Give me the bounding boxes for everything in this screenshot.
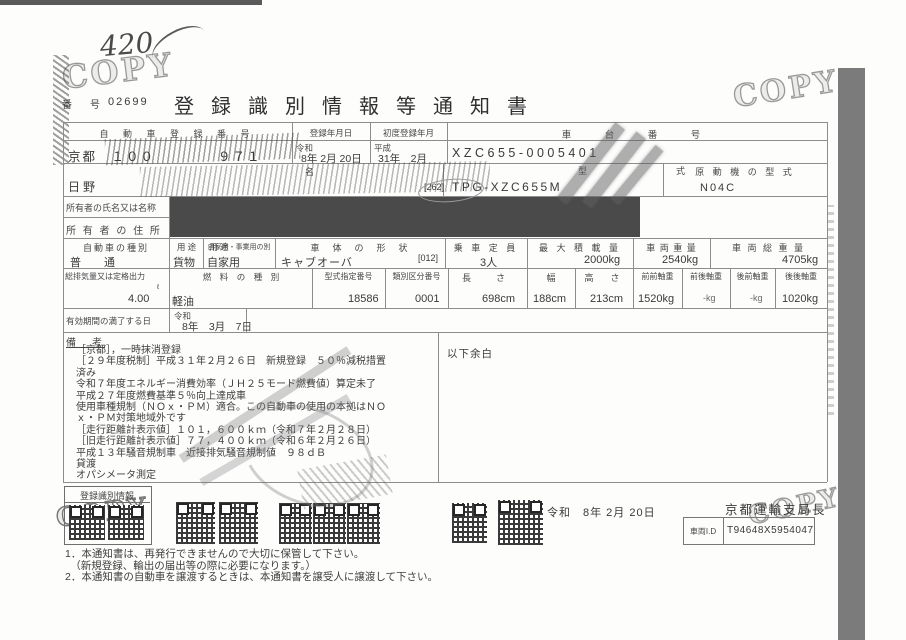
- doc-number-label: 番 号: [62, 96, 104, 111]
- axle-rr-label: 後後軸重: [775, 271, 827, 282]
- qr-code: [176, 502, 215, 544]
- capacity-value: 3人: [480, 254, 497, 270]
- vehicle-id-label: 車両I.D: [683, 526, 723, 537]
- scan-side-bar: [838, 68, 865, 640]
- qr-code: [347, 503, 380, 544]
- width-label: 幅: [527, 271, 575, 284]
- registration-notice-document: 420 COPY COPY COPY COPY 番 号 02699 登録識別情報…: [0, 0, 906, 640]
- qr-code: [108, 505, 144, 540]
- length-value: 698cm: [482, 293, 515, 305]
- height-label: 高 さ: [575, 271, 633, 284]
- engine-model-value: N04C: [700, 182, 736, 194]
- reg-date-label: 登録年月日: [292, 127, 370, 139]
- weight-label: 車 両 重 量: [633, 241, 710, 254]
- length-label: 長 さ: [448, 271, 527, 284]
- reg-id-box-label: 登録識別情報: [64, 489, 150, 502]
- axle-ff-value: 1520kg: [638, 293, 674, 305]
- width-value: 188cm: [533, 293, 566, 305]
- gross-weight-value: 4705kg: [782, 254, 818, 266]
- vehicle-id-value: T94648X5954047: [727, 525, 814, 536]
- axle-rf-value: -kg: [750, 293, 763, 303]
- doc-number: 02699: [108, 96, 149, 108]
- body-shape-value: キャブオーバ: [281, 254, 353, 270]
- category-value: 普 通: [70, 254, 121, 270]
- type-no-value: 18586: [348, 293, 379, 305]
- chassis-value: XZC655-0005401: [452, 146, 600, 160]
- max-load-label: 最 大 積 載 量: [527, 241, 633, 254]
- axle-rr-value: 1020kg: [782, 293, 818, 305]
- scan-bleed-marks: [828, 205, 834, 415]
- height-value: 213cm: [590, 293, 623, 305]
- footnote-line: 1．本通知書は、再発行できませんので大切に保管して下さい。: [65, 549, 525, 561]
- type-no-label: 型式指定番号: [312, 271, 385, 282]
- gross-weight-label: 車 両 総 重 量: [710, 241, 827, 254]
- blank-note: 以下余白: [447, 346, 493, 361]
- footnote-line: 2．本通知書の自動車を譲渡するときは、本通知書を譲受人に譲渡して下さい。: [65, 572, 525, 584]
- qr-code: [219, 502, 258, 544]
- scan-edge-top: [0, 0, 262, 5]
- expiry-label: 有効期間の満了する日: [66, 315, 151, 327]
- owner-address-label: 所 有 者 の 住 所: [66, 222, 162, 237]
- first-reg-label: 初度登録年月: [370, 127, 447, 139]
- fuel-label: 燃 料 の 種 別: [170, 271, 312, 283]
- remark-line: ［２９年度税制］平成３１年２月２６日 新規登録 ５０％減税措置: [76, 356, 436, 367]
- fuel-value: 軽油: [172, 293, 194, 309]
- axle-fr-value: -kg: [703, 293, 716, 303]
- class-no-value: 0001: [415, 293, 439, 305]
- page-title: 登録識別情報等通知書: [174, 90, 544, 119]
- qr-code: [498, 500, 543, 545]
- body-shape-code: [012]: [418, 253, 438, 263]
- weight-value: 2540kg: [662, 254, 698, 266]
- use-value: 貨物: [173, 254, 195, 270]
- qr-code: [69, 505, 105, 540]
- expiry-value: 8年 3月 7日: [182, 319, 252, 334]
- issuing-authority: 京都運輸支局長: [725, 499, 827, 518]
- owner-name-label: 所有者の氏名又は名称: [66, 201, 156, 214]
- owner-info-redaction: [170, 197, 640, 237]
- axle-ff-label: 前前軸重: [633, 271, 682, 282]
- car-name-value: 日野: [68, 178, 98, 195]
- remark-line: ［京都］，一時抹消登録: [76, 345, 436, 356]
- axle-fr-label: 前後軸重: [682, 271, 730, 282]
- footnotes: 1．本通知書は、再発行できませんので大切に保管して下さい。 （新規登録、輸出の届…: [65, 549, 525, 584]
- issue-date: 令和 8年 2月 20日: [547, 504, 656, 520]
- capacity-label: 乗 車 定 員: [445, 241, 527, 254]
- private-use-label: 自家用・事業用の別: [203, 242, 275, 252]
- displacement-value: 4.00: [128, 293, 149, 305]
- qr-code: [313, 503, 346, 544]
- copy-watermark-top-left: COPY: [60, 45, 176, 96]
- qr-code: [452, 503, 487, 543]
- displacement-unit: ℓ: [157, 284, 159, 291]
- category-label: 自動車の種別: [63, 241, 169, 254]
- remark-line: 平成２７年度燃費基準５％向上達成車: [76, 391, 436, 402]
- engine-model-label: 原 動 機 の 型 式: [665, 165, 825, 178]
- axle-rf-label: 後前軸重: [730, 271, 775, 282]
- private-use-value: 自家用: [207, 254, 240, 270]
- pen-scribble-plate: [105, 133, 301, 166]
- remark-line: 令和７年度エネルギー消費効率（ＪＨ２５モード燃費値）算定未了: [76, 379, 436, 390]
- remark-line: 済み: [76, 368, 436, 379]
- displacement-label: 総排気量又は定格出力: [65, 271, 145, 282]
- use-label2: 用 途: [170, 241, 203, 253]
- class-no-label: 類別区分番号: [385, 271, 448, 282]
- max-load-value: 2000kg: [584, 254, 620, 266]
- copy-watermark-top-right: COPY: [731, 64, 841, 115]
- qr-code: [279, 503, 312, 544]
